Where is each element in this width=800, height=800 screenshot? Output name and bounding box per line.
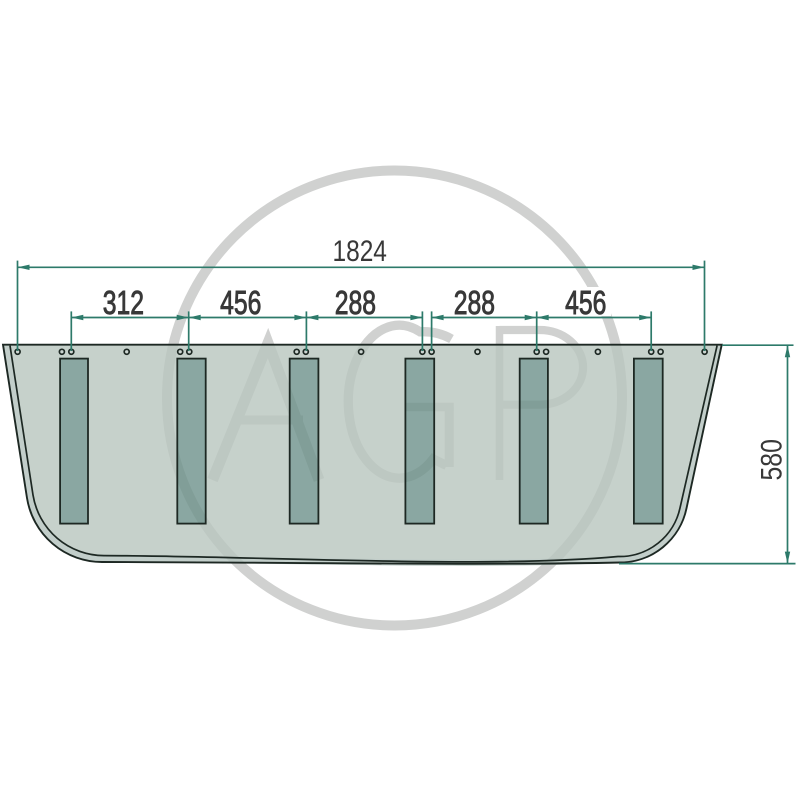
svg-text:288: 288 — [454, 286, 495, 322]
svg-text:456: 456 — [565, 286, 606, 322]
svg-text:288: 288 — [335, 286, 376, 322]
svg-text:456: 456 — [220, 286, 261, 322]
svg-text:312: 312 — [103, 286, 144, 322]
svg-text:580: 580 — [754, 439, 788, 480]
svg-text:1824: 1824 — [332, 234, 386, 268]
